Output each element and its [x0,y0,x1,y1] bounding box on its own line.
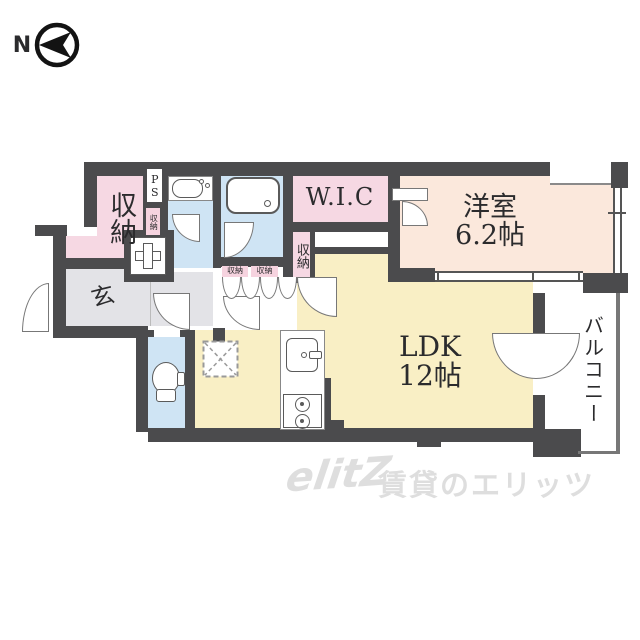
scallop-4 [278,277,297,299]
western-room-name: 洋室 [463,194,517,222]
western-room-size: 6.2帖 [455,222,525,250]
wall-balcony-left-bottom [533,395,545,433]
western-room-label: 洋室 6.2帖 [420,190,560,254]
wall-bottom-main [148,428,536,442]
wall-western-bottom-right [583,273,628,293]
scallop-1 [222,277,241,299]
ldk-size: 12帖 [398,361,462,390]
wall-wic-right [388,162,400,273]
slide-tick-3 [578,273,580,280]
wall-left-mid [53,225,66,338]
wall-strip-right [310,232,315,278]
wall-toilet-right [185,333,195,428]
ps-label: PS [147,169,162,202]
kitchen-faucet-dot [301,352,307,358]
western-right-window-tick [608,212,626,214]
balcony-bottom-line [578,451,620,454]
wall-bottom-step [417,438,441,447]
stove-burner-2 [295,414,310,429]
toilet-base [156,389,176,402]
balcony-label: バルコニー [578,298,606,442]
wall-entrance-bottom [53,326,148,338]
balcony-right-line [616,293,620,454]
storage-strip-label: 収納 [292,234,310,278]
ldk-name: LDK [399,332,461,361]
scallop-2 [241,277,260,299]
wall-washroom-right [213,162,221,268]
toilet-door-gap [154,330,180,337]
stove-burner-1 [295,397,310,412]
storage-tiny-label-a: 収納 [222,266,248,277]
ldk-fill-main [195,330,533,428]
bathtub-drain [264,200,271,207]
floor-plan: N [0,0,640,640]
wall-top-right-corner [611,162,628,188]
watermark-text: 賃貸のエリッツ [378,462,595,504]
slide-tick-2 [532,273,534,280]
north-label: N [10,32,34,60]
scallop-3 [260,277,279,299]
corridor-door-arc [223,296,260,330]
kitchen-faucet-handle [309,351,322,359]
wall-ldk-upper [310,247,388,254]
slide-tick-1 [437,273,439,280]
storage-room-fill-ext [66,236,97,258]
wall-wic-bottom [292,222,390,232]
wall-toilet-left [136,326,148,432]
western-room-notch-line [550,183,613,185]
wic-label: W.I.C [292,184,388,212]
washer-pan-cross-v [143,243,153,269]
western-right-window [613,188,622,273]
north-compass-icon [33,21,81,69]
storage-room-label: 収納 [103,180,137,256]
western-bottom-sliding-door [435,271,583,282]
ldk-label: LDK 12帖 [378,328,482,394]
wall-western-bottom-left [388,268,435,282]
toilet-handle [177,372,185,386]
wall-left-top [84,162,97,227]
wall-balcony-left-top [533,293,545,333]
storage-tiny-label-b: 収納 [251,266,278,277]
bathtub [226,177,280,214]
washbasin-faucet-dot1 [199,179,204,184]
folding-door-scallops [222,277,297,301]
wall-balcony-block [533,429,581,457]
washbasin-faucet-dot2 [205,183,210,188]
entrance-door-arc [22,283,49,332]
refrigerator-space-icon [202,340,239,378]
ps-storage-label: 収納 [146,208,160,235]
